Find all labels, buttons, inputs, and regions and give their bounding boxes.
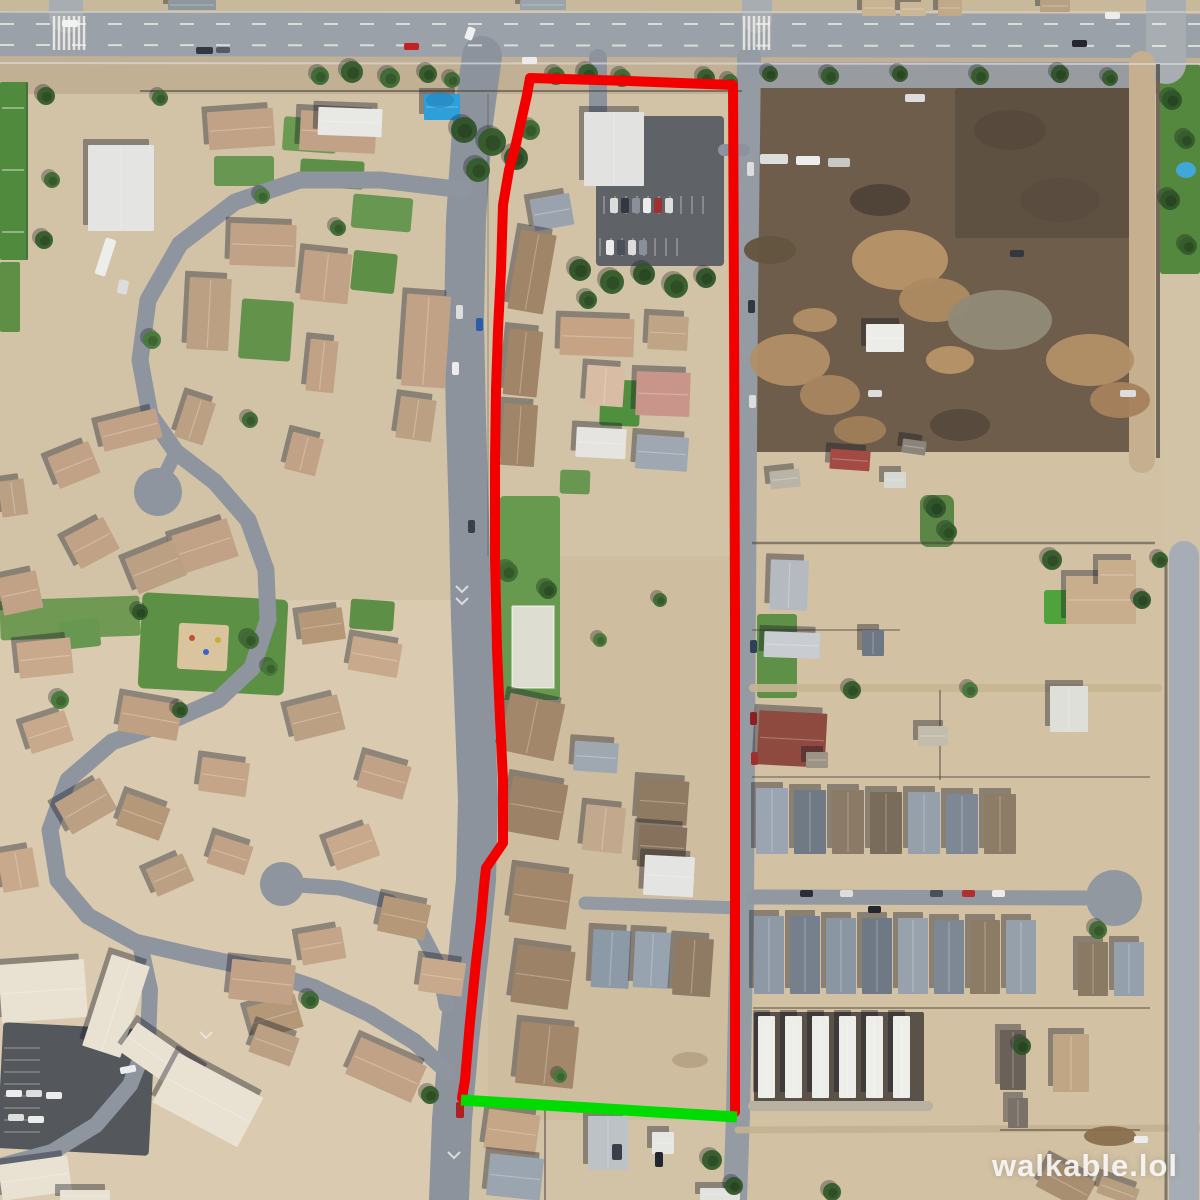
ground-zone (214, 156, 274, 186)
tree-inner (246, 636, 256, 646)
vehicle (632, 198, 640, 213)
tree-inner (1182, 136, 1192, 146)
tree-inner (347, 67, 359, 79)
road (753, 897, 1086, 898)
vehicle (606, 240, 614, 255)
road (0, 34, 1200, 36)
vehicle (1120, 390, 1136, 397)
tree-inner (606, 276, 619, 289)
tree-inner (335, 225, 344, 234)
dirt-pile (850, 184, 910, 216)
vehicle (617, 240, 625, 255)
tree-inner (702, 274, 713, 285)
dirt-pile (800, 375, 860, 415)
tree-inner (386, 74, 397, 85)
tree-inner (526, 126, 537, 137)
vehicle (476, 318, 483, 331)
tree-inner (267, 665, 276, 674)
playground-equipment (189, 635, 195, 641)
tree-inner (449, 77, 458, 86)
ground-zone (177, 623, 229, 672)
vehicle (760, 154, 788, 164)
dirt-pile (926, 346, 974, 374)
tree-inner (1157, 557, 1166, 566)
road (585, 903, 742, 908)
dirt-pile (793, 308, 837, 332)
vehicle (628, 240, 636, 255)
tree-inner (426, 1091, 436, 1101)
vehicle (905, 94, 925, 102)
vehicle (452, 362, 459, 375)
culdesac (1086, 870, 1142, 926)
tree-inner (1184, 242, 1194, 252)
tree-inner (56, 696, 66, 706)
vehicle (28, 1116, 44, 1123)
playground-equipment (215, 637, 221, 643)
dirt-pile (744, 236, 796, 264)
vehicle (930, 890, 943, 897)
pool (426, 92, 454, 108)
pool (1176, 162, 1196, 178)
vehicle (800, 890, 813, 897)
vehicle (216, 47, 230, 53)
vehicle (639, 240, 647, 255)
tree-inner (944, 528, 954, 538)
tree-inner (557, 1073, 565, 1081)
tree-inner (967, 687, 976, 696)
vehicle (962, 890, 975, 897)
building (0, 478, 28, 517)
culdesac (260, 862, 304, 906)
tree-inner (424, 70, 434, 80)
ground-zone (752, 62, 1154, 88)
vehicle (747, 162, 754, 176)
satellite-map-canvas (0, 0, 1200, 1200)
tree-inner (828, 1188, 838, 1198)
ground-zone (349, 599, 395, 632)
tree-inner (544, 586, 554, 596)
tree-inner (472, 164, 485, 177)
tree-inner (1094, 926, 1104, 936)
dirt-pile (834, 416, 886, 444)
vehicle (26, 1090, 42, 1097)
vehicle (749, 395, 756, 408)
satellite-map-view: walkable.lol (0, 0, 1200, 1200)
vehicle (62, 20, 78, 27)
tree-inner (137, 609, 146, 618)
vehicle (750, 640, 757, 653)
dirt-pile (930, 409, 990, 441)
tree-inner (504, 568, 515, 579)
vehicle (840, 890, 853, 897)
tree-inner (1166, 196, 1177, 207)
vehicle (456, 305, 463, 319)
vehicle (751, 752, 758, 765)
vehicle (404, 43, 419, 50)
vehicle (868, 906, 881, 913)
building (0, 847, 39, 893)
vehicle (1072, 40, 1087, 47)
tree-inner (1107, 75, 1116, 84)
vehicle (1134, 1136, 1148, 1143)
dirt-pile (974, 110, 1046, 150)
tree-inner (897, 71, 906, 80)
vehicle (655, 1152, 663, 1167)
tree-inner (708, 1156, 719, 1167)
tree-inner (259, 193, 268, 202)
vehicle (1105, 12, 1120, 19)
vehicle (665, 198, 673, 213)
tree-inner (1168, 96, 1179, 107)
tree-inner (49, 177, 58, 186)
vehicle (643, 198, 651, 213)
ground-zone (238, 298, 294, 361)
ground-zone (351, 193, 414, 232)
vehicle (522, 57, 537, 64)
dirt-pile (1084, 1126, 1136, 1146)
tree-inner (247, 417, 256, 426)
vehicle (1010, 250, 1024, 257)
vehicle (992, 890, 1005, 897)
playground-equipment (203, 649, 209, 655)
vehicle (196, 47, 213, 54)
tree-inner (976, 72, 986, 82)
tree-inner (1018, 1042, 1028, 1052)
vehicle (750, 712, 757, 725)
tree-inner (657, 597, 665, 605)
tree-inner (485, 135, 500, 150)
tree-inner (306, 996, 316, 1006)
tree-inner (1138, 596, 1148, 606)
tree-inner (597, 637, 605, 645)
ground-zone (560, 469, 591, 494)
tree-inner (767, 71, 776, 80)
vehicle (868, 390, 882, 397)
tree-inner (316, 72, 326, 82)
tree-inner (670, 280, 683, 293)
dirt-pile (1020, 178, 1100, 222)
tree-inner (730, 1182, 740, 1192)
vehicle (796, 156, 820, 165)
culdesac (134, 468, 182, 516)
tree-inner (148, 336, 158, 346)
vehicle (468, 520, 475, 533)
dirt-pile (672, 1052, 708, 1068)
tree-inner (157, 95, 166, 104)
vehicle (610, 198, 618, 213)
tree-inner (848, 686, 858, 696)
vehicle (6, 1090, 22, 1097)
road-marking (0, 63, 1200, 64)
vehicle (828, 158, 850, 167)
tree-inner (458, 124, 472, 138)
tree-inner (42, 92, 52, 102)
tree-inner (1056, 70, 1066, 80)
tree-inner (639, 269, 651, 281)
vehicle (612, 1144, 622, 1160)
dirt-pile (1090, 382, 1150, 418)
tree-inner (40, 236, 50, 246)
ground-zone (0, 262, 20, 332)
tree-inner (177, 707, 186, 716)
vehicle (46, 1092, 62, 1099)
ground-zone (512, 606, 554, 688)
dirt-pile (1046, 334, 1134, 386)
ground-zone (350, 250, 398, 294)
building (60, 1190, 110, 1200)
tree-inner (932, 504, 943, 515)
dirt-pile (948, 290, 1052, 350)
tree-inner (575, 265, 587, 277)
vehicle (748, 300, 755, 313)
tree-inner (826, 72, 836, 82)
tree-inner (584, 296, 594, 306)
vehicle (8, 1114, 24, 1121)
tree-inner (1048, 556, 1059, 567)
vehicle (621, 198, 629, 213)
vehicle (654, 198, 662, 213)
